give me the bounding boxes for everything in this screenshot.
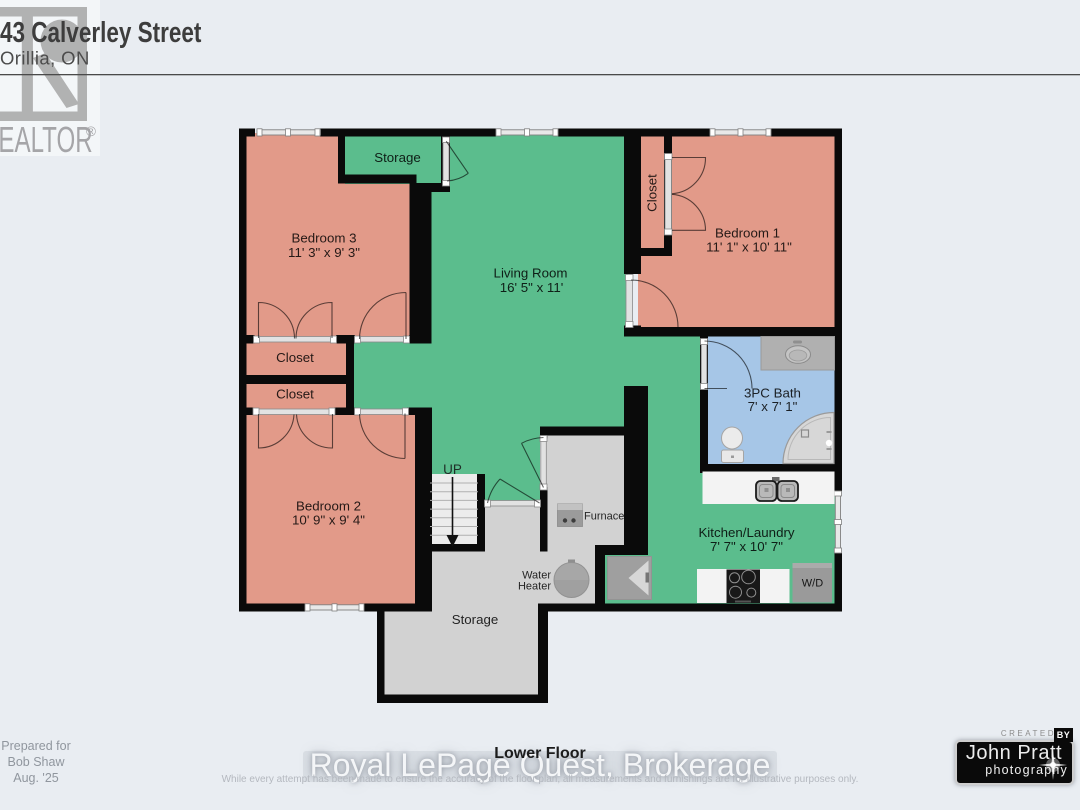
svg-text:16' 5" x 11': 16' 5" x 11' — [500, 280, 564, 295]
svg-text:Closet: Closet — [276, 387, 314, 402]
svg-text:7' 7" x 10' 7": 7' 7" x 10' 7" — [710, 539, 783, 554]
svg-text:Heater: Heater — [518, 581, 551, 593]
svg-text:43 Calverley Street: 43 Calverley Street — [0, 18, 202, 49]
svg-text:Orillia, ON: Orillia, ON — [0, 48, 90, 69]
svg-text:11' 3" x 9' 3": 11' 3" x 9' 3" — [288, 245, 360, 260]
svg-text:10' 9" x 9' 4": 10' 9" x 9' 4" — [292, 513, 365, 528]
svg-text:W/D: W/D — [802, 578, 823, 590]
svg-text:Bedroom 2: Bedroom 2 — [296, 499, 361, 514]
svg-text:REALTOR: REALTOR — [0, 120, 93, 160]
svg-text:Storage: Storage — [452, 612, 499, 627]
svg-text:7' x 7' 1": 7' x 7' 1" — [748, 399, 798, 414]
svg-text:11' 1" x 10' 11": 11' 1" x 10' 11" — [706, 240, 792, 255]
svg-text:Closet: Closet — [276, 350, 314, 365]
svg-text:Bedroom 1: Bedroom 1 — [715, 226, 780, 241]
svg-text:Storage: Storage — [374, 150, 421, 165]
svg-text:®: ® — [86, 124, 96, 139]
svg-text:Living Room: Living Room — [494, 266, 568, 281]
svg-text:Kitchen/Laundry: Kitchen/Laundry — [698, 525, 794, 540]
svg-text:Furnace: Furnace — [584, 511, 624, 523]
svg-text:Bedroom 3: Bedroom 3 — [291, 231, 356, 246]
svg-text:Closet: Closet — [645, 174, 660, 212]
svg-text:UP: UP — [443, 462, 462, 477]
